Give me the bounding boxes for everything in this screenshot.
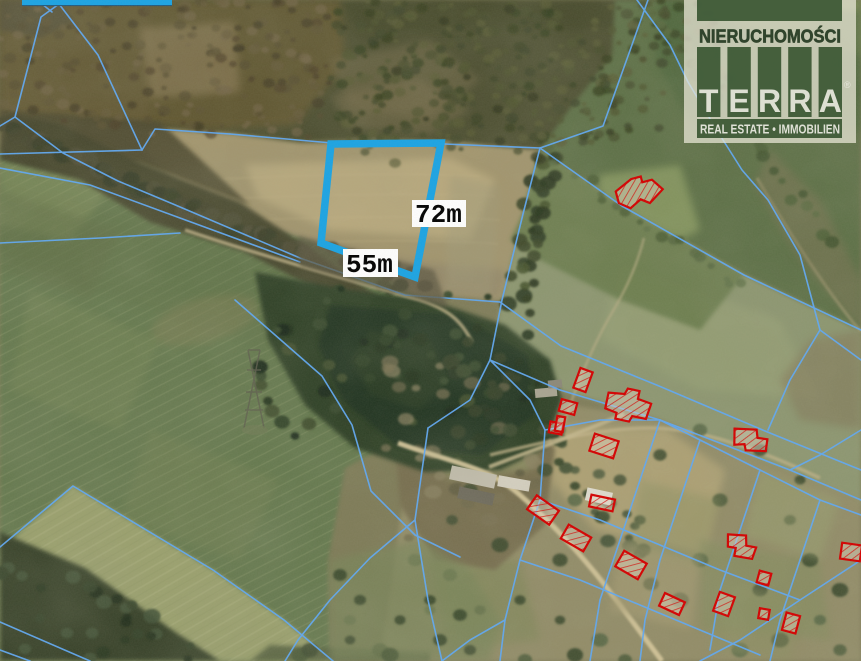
svg-text:NIERUCHOMOŚCI: NIERUCHOMOŚCI [699,26,841,47]
svg-text:A: A [819,83,842,119]
svg-text:R: R [758,83,781,119]
svg-text:T: T [699,83,719,119]
svg-text:R: R [788,83,811,119]
svg-text:E: E [728,83,749,119]
svg-text:REAL ESTATE • IMMOBILIEN: REAL ESTATE • IMMOBILIEN [700,122,840,137]
svg-text:®: ® [844,80,851,90]
